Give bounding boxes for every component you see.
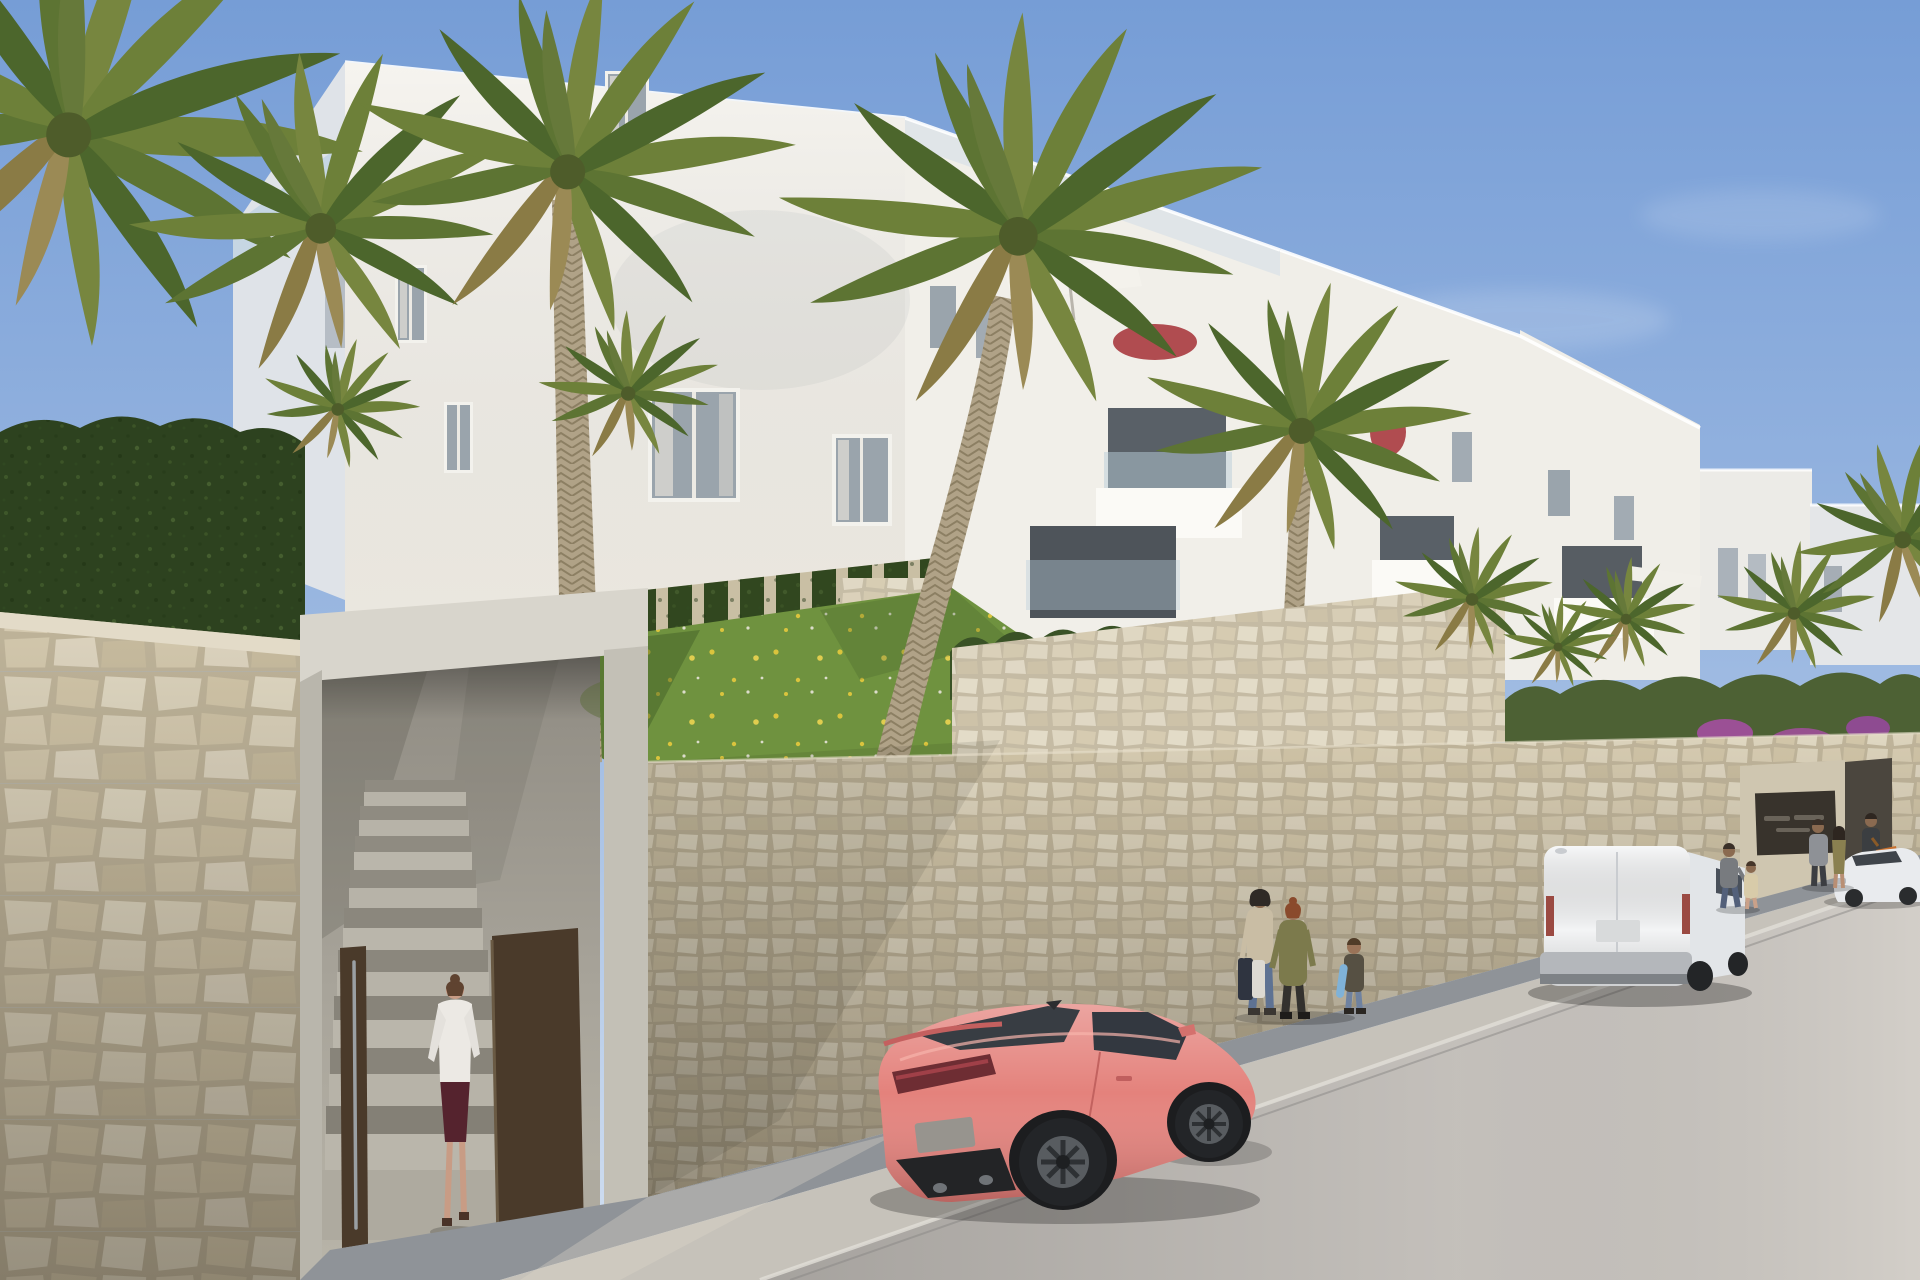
gate-leaf-right [492,928,584,1248]
portal-jamb-left [300,670,322,1280]
foreground-stone-wall [0,612,300,1280]
gate-handle [354,962,356,1228]
portal-jamb-right [604,646,648,1236]
window [444,402,473,473]
car-rear-wheel [1019,1118,1107,1206]
window [648,388,740,502]
window [832,434,892,526]
cloud [1640,189,1880,241]
car-front-wheel [1175,1090,1243,1158]
entrance-portal [300,588,700,1280]
scene-root [0,0,1920,1280]
